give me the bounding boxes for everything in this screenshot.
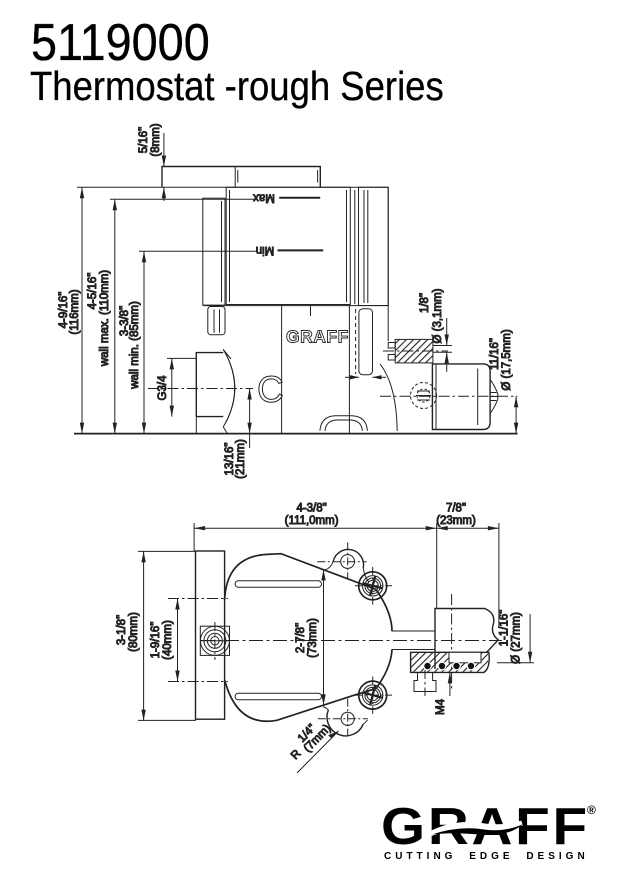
svg-text:R: R [289,748,303,762]
svg-text:(8mm): (8mm) [150,123,162,156]
svg-text:Ø (17,5mm): Ø (17,5mm) [501,329,513,391]
svg-text:2-7/8": 2-7/8" [295,623,307,653]
svg-text:wall max. (110mm): wall max. (110mm) [99,270,111,367]
svg-text:11/16": 11/16" [489,338,501,370]
svg-text:GRAFF: GRAFF [286,327,349,347]
svg-text:M4: M4 [435,698,447,715]
svg-text:G3/4: G3/4 [157,375,169,401]
svg-text:C: C [257,369,284,410]
svg-text:(21mm): (21mm) [235,439,247,479]
svg-text:5/16": 5/16" [138,127,150,153]
svg-text:Ø (3,1mm): Ø (3,1mm) [432,288,444,343]
svg-text:Max: Max [253,191,275,203]
svg-text:1-9/16": 1-9/16" [150,622,162,659]
svg-text:(80mm): (80mm) [128,612,140,652]
svg-text:(40mm): (40mm) [162,620,174,660]
svg-text:Min: Min [256,244,275,256]
svg-text:4-5/16": 4-5/16" [87,273,99,310]
svg-text:(116mm): (116mm) [69,289,81,334]
svg-text:4-3/8": 4-3/8" [296,503,326,515]
svg-text:1/8": 1/8" [419,293,431,313]
svg-text:3-1/8": 3-1/8" [116,615,128,645]
svg-text:(73mm): (73mm) [307,618,319,658]
svg-text:1-1/16": 1-1/16" [499,610,511,647]
svg-text:(111,0mm): (111,0mm) [285,515,339,527]
svg-text:wall min. (85mm): wall min. (85mm) [129,301,141,390]
svg-text:Ø (27mm): Ø (27mm) [511,612,523,664]
svg-text:(23mm): (23mm) [436,515,476,527]
svg-text:7/8": 7/8" [446,503,466,515]
